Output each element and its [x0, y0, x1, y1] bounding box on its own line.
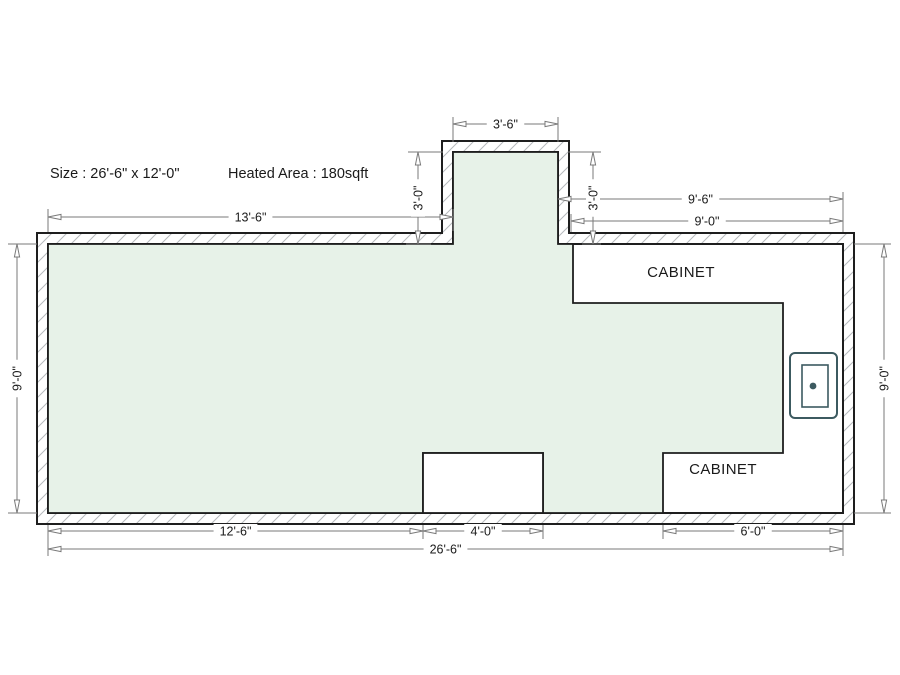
dimension-label: 4'-0" [471, 524, 496, 538]
dimension: 9'-0" [10, 244, 24, 513]
sink-drain-dot [810, 383, 817, 390]
dimension-arrow [590, 152, 595, 165]
dimension-arrow [881, 500, 886, 513]
dimension-arrow [663, 528, 676, 533]
dimension-arrow [423, 528, 436, 533]
dimension-arrow [14, 244, 19, 257]
dimension-arrow [48, 528, 61, 533]
dimension: 4'-0" [423, 524, 543, 538]
dimension-arrow [14, 500, 19, 513]
floor-opening [423, 453, 543, 513]
floor-plan-page: 3'-6"13'-6"9'-6"9'-0"3'-0"3'-0"9'-0"9'-0… [0, 0, 900, 675]
dimension: 3'-0" [586, 152, 600, 244]
dimension-label: 3'-6" [493, 117, 518, 131]
heated-area-label: Heated Area : 180sqft [228, 166, 368, 182]
dimension-arrow [571, 218, 584, 223]
dimension-arrow [830, 218, 843, 223]
dimension-label: 9'-6" [688, 192, 713, 206]
dimension-arrow [881, 244, 886, 257]
cabinet-label-top: CABINET [647, 264, 715, 281]
dimension-label: 3'-0" [586, 186, 600, 211]
dimension-arrow [530, 528, 543, 533]
dimension-arrow [410, 528, 423, 533]
dimension: 3'-0" [411, 152, 425, 244]
dimension-label: 13'-6" [235, 210, 267, 224]
dimension: 26'-6" [48, 542, 843, 556]
dimension-label: 9'-0" [695, 214, 720, 228]
dimension-label: 12'-6" [220, 524, 252, 538]
dimension-arrow [830, 528, 843, 533]
dimension-label: 26'-6" [430, 542, 462, 556]
dimension-label: 9'-0" [877, 366, 891, 391]
dimension-label: 3'-0" [411, 186, 425, 211]
dimension: 13'-6" [48, 210, 453, 224]
dimension-arrow [453, 121, 466, 126]
dimension: 9'-0" [571, 214, 843, 228]
dimension: 9'-0" [877, 244, 891, 513]
dimension: 9'-6" [558, 192, 843, 206]
dimension-arrow [415, 152, 420, 165]
dimension-label: 9'-0" [10, 366, 24, 391]
dimension-arrow [830, 196, 843, 201]
floor-plan-canvas: 3'-6"13'-6"9'-6"9'-0"3'-0"3'-0"9'-0"9'-0… [0, 0, 900, 675]
dimension: 6'-0" [663, 524, 843, 538]
dimension-arrow [830, 546, 843, 551]
dimension-arrow [545, 121, 558, 126]
fixture-layer [790, 353, 837, 418]
cabinet-label-bottom: CABINET [689, 461, 757, 478]
dimension-label: 6'-0" [741, 524, 766, 538]
size-label: Size : 26'-6" x 12'-0" [50, 166, 179, 182]
dimension-arrow [48, 546, 61, 551]
dimension: 12'-6" [48, 524, 423, 538]
dimension-arrow [48, 214, 61, 219]
dimension: 3'-6" [453, 117, 558, 131]
